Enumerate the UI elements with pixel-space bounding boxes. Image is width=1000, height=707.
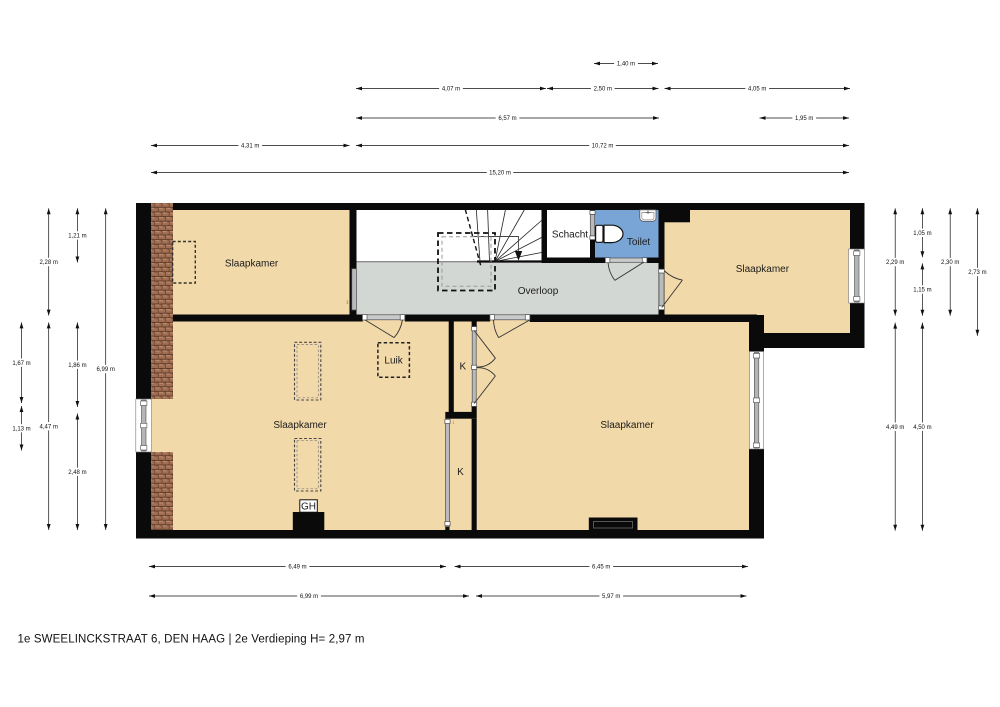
svg-text:4,05 m: 4,05 m	[748, 87, 766, 93]
svg-text:Luik: Luik	[384, 355, 403, 366]
svg-text:15,20 m: 15,20 m	[489, 171, 511, 177]
svg-text:4,49 m: 4,49 m	[886, 425, 904, 431]
svg-text:K: K	[457, 467, 464, 478]
svg-text:4,50 m: 4,50 m	[913, 425, 931, 431]
svg-text:1,15 m: 1,15 m	[913, 288, 931, 294]
svg-text:1,67 m: 1,67 m	[12, 361, 30, 367]
svg-text:4,07 m: 4,07 m	[442, 87, 460, 93]
svg-text:i: i	[453, 420, 454, 425]
svg-text:1,40 m: 1,40 m	[617, 62, 635, 68]
svg-text:2,28 m: 2,28 m	[40, 260, 58, 266]
svg-text:1e SWEELINCKSTRAAT 6, DEN HAAG: 1e SWEELINCKSTRAAT 6, DEN HAAG | 2e Verd…	[18, 634, 365, 646]
svg-text:6,57 m: 6,57 m	[498, 116, 516, 122]
svg-text:4,47 m: 4,47 m	[40, 424, 58, 430]
svg-text:Toilet: Toilet	[627, 237, 651, 248]
svg-text:6,99 m: 6,99 m	[97, 367, 115, 373]
svg-text:2,48 m: 2,48 m	[68, 470, 86, 476]
svg-text:1,95 m: 1,95 m	[795, 116, 813, 122]
svg-text:5,97 m: 5,97 m	[602, 594, 620, 600]
svg-text:Slaapkamer: Slaapkamer	[273, 420, 327, 431]
svg-text:6,99 m: 6,99 m	[300, 594, 318, 600]
svg-text:Slaapkamer: Slaapkamer	[600, 420, 654, 431]
svg-text:1,13 m: 1,13 m	[12, 426, 30, 432]
svg-text:2,73 m: 2,73 m	[968, 270, 986, 276]
svg-text:Slaapkamer: Slaapkamer	[225, 258, 279, 269]
svg-text:1,05 m: 1,05 m	[913, 231, 931, 237]
svg-text:6,45 m: 6,45 m	[592, 565, 610, 571]
svg-text:10,72 m: 10,72 m	[592, 144, 614, 150]
svg-text:4,31 m: 4,31 m	[241, 144, 259, 150]
svg-text:Slaapkamer: Slaapkamer	[736, 264, 790, 275]
svg-text:6,49 m: 6,49 m	[288, 565, 306, 571]
svg-text:2,50 m: 2,50 m	[594, 87, 612, 93]
svg-text:Schacht: Schacht	[552, 229, 588, 240]
svg-text:GH: GH	[301, 501, 316, 512]
svg-text:K: K	[459, 361, 466, 372]
svg-text:Overloop: Overloop	[518, 286, 559, 297]
svg-text:2,29 m: 2,29 m	[886, 260, 904, 266]
svg-text:2,30 m: 2,30 m	[941, 260, 959, 266]
svg-text:1,21 m: 1,21 m	[68, 234, 86, 240]
svg-text:1,86 m: 1,86 m	[68, 363, 86, 369]
